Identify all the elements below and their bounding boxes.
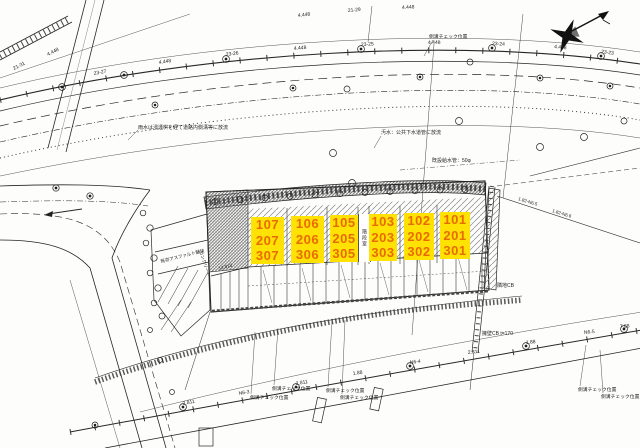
unit-number: 301 bbox=[443, 243, 466, 259]
tick-label: 4.448 bbox=[158, 58, 172, 66]
gutter-check-label: 側溝チェック位置 bbox=[272, 385, 311, 392]
annotation-leaders bbox=[128, 40, 520, 170]
tick-label: 2.811 bbox=[468, 349, 481, 356]
unit-number: 305 bbox=[332, 246, 355, 262]
top-road-lines bbox=[0, 0, 640, 335]
tick-label: 1.82-N6.5 bbox=[518, 196, 539, 207]
unit-box-101[interactable]: 101 201 301 bbox=[440, 212, 470, 259]
tick-label: 23-24 bbox=[492, 41, 505, 48]
unit-number: 106 bbox=[296, 216, 319, 232]
west-road-lines bbox=[0, 185, 175, 448]
unit-number: 205 bbox=[332, 231, 355, 247]
gutter-check-label: 側溝チェック位置 bbox=[340, 394, 379, 401]
unit-number: 207 bbox=[256, 233, 279, 249]
tick-label: 23-23 bbox=[601, 49, 615, 57]
tick-label: N6-3 bbox=[238, 389, 250, 397]
water-pipe-label: 既設給水管：50φ bbox=[432, 157, 471, 164]
tick-label: 4.448 bbox=[402, 4, 415, 11]
gutter-check-label: 側溝チェック位置 bbox=[601, 393, 640, 400]
gutter-check-label: 側溝チェック位置 bbox=[578, 386, 617, 393]
tick-label: 1.88 bbox=[526, 339, 536, 346]
unit-number: 202 bbox=[407, 229, 430, 245]
tick-label: N6-4 bbox=[410, 359, 422, 366]
unit-number: 105 bbox=[332, 215, 355, 231]
unit-box-102[interactable]: 102 202 302 bbox=[404, 213, 434, 260]
tick-label: 4.448 bbox=[554, 44, 567, 51]
unit-number: 203 bbox=[371, 230, 394, 246]
tick-label: 21-31 bbox=[12, 61, 26, 72]
tick-label: 4.448 bbox=[294, 45, 307, 52]
unit-box-105[interactable]: 105 205 305 bbox=[330, 215, 358, 262]
tick-label: 2.811 bbox=[295, 379, 308, 387]
gutter-check-label: 側溝チェック位置 bbox=[326, 387, 365, 394]
north-arrow-icon bbox=[544, 11, 610, 59]
unit-box-103[interactable]: 103 203 303 bbox=[369, 214, 397, 261]
unit-box-107[interactable]: 107 207 307 bbox=[251, 217, 284, 264]
unit-number: 102 bbox=[407, 213, 430, 229]
tick-label: 4.448 bbox=[46, 47, 60, 58]
sewage-note-label: 汚水：公共下水道管に放流 bbox=[381, 129, 441, 136]
unit-number: 107 bbox=[256, 217, 279, 233]
unit-number: 101 bbox=[443, 212, 466, 228]
tick-label: 7.88 bbox=[620, 323, 630, 330]
unit-number: 306 bbox=[296, 247, 319, 263]
unit-box-106[interactable]: 106 206 306 bbox=[291, 216, 324, 263]
tick-label: 1.88 bbox=[352, 370, 363, 377]
unit-number: 103 bbox=[371, 214, 394, 230]
tick-label: 2.811 bbox=[182, 399, 195, 407]
tick-label: 4.448 bbox=[428, 40, 441, 46]
rain-note-label: 雨水は浸透桝を経て道路内側溝等に放流 bbox=[138, 124, 228, 131]
tick-label: 23-27 bbox=[93, 69, 107, 77]
unit-number: 302 bbox=[407, 244, 430, 260]
tick-label: 23-25 bbox=[361, 41, 374, 48]
site-plan-screenshot: 23-27 4.448 23-26 4.448 23-25 4.448 23-2… bbox=[0, 0, 640, 448]
gutter-check-label: 側溝チェック位置 bbox=[250, 394, 289, 401]
stair-core-label: 階段室 bbox=[361, 229, 368, 247]
gutter-check-label: 側溝チェック位置 bbox=[429, 33, 468, 40]
neighbor-cb-label: 隣地CB bbox=[497, 282, 514, 289]
unit-number: 307 bbox=[256, 248, 279, 264]
tick-label: 4.448 bbox=[298, 11, 311, 19]
tick-label: N6-5 bbox=[584, 329, 596, 336]
unit-number: 303 bbox=[371, 245, 394, 261]
unit-number: 201 bbox=[443, 228, 466, 244]
tick-label: 21-29 bbox=[348, 7, 361, 14]
tick-label: 23-26 bbox=[226, 50, 240, 58]
unit-number: 206 bbox=[296, 232, 319, 248]
retaining-wall-label: 擁壁CB t=170 bbox=[482, 330, 513, 337]
